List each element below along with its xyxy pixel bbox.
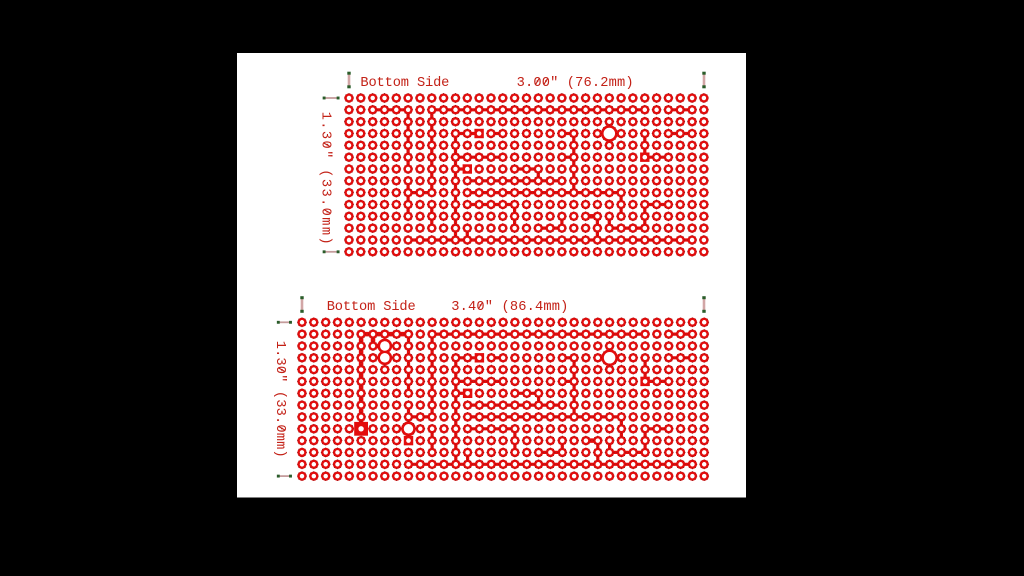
svg-text:Bottom Side: Bottom Side bbox=[360, 76, 449, 91]
svg-text:3.40" (86.4mm): 3.40" (86.4mm) bbox=[451, 300, 568, 315]
svg-text:Bottom Side: Bottom Side bbox=[327, 300, 416, 315]
svg-text:1.30" (33.0mm): 1.30" (33.0mm) bbox=[272, 341, 287, 458]
svg-text:3.00" (76.2mm): 3.00" (76.2mm) bbox=[517, 76, 634, 91]
svg-text:1.30" (33.0mm): 1.30" (33.0mm) bbox=[317, 112, 332, 245]
